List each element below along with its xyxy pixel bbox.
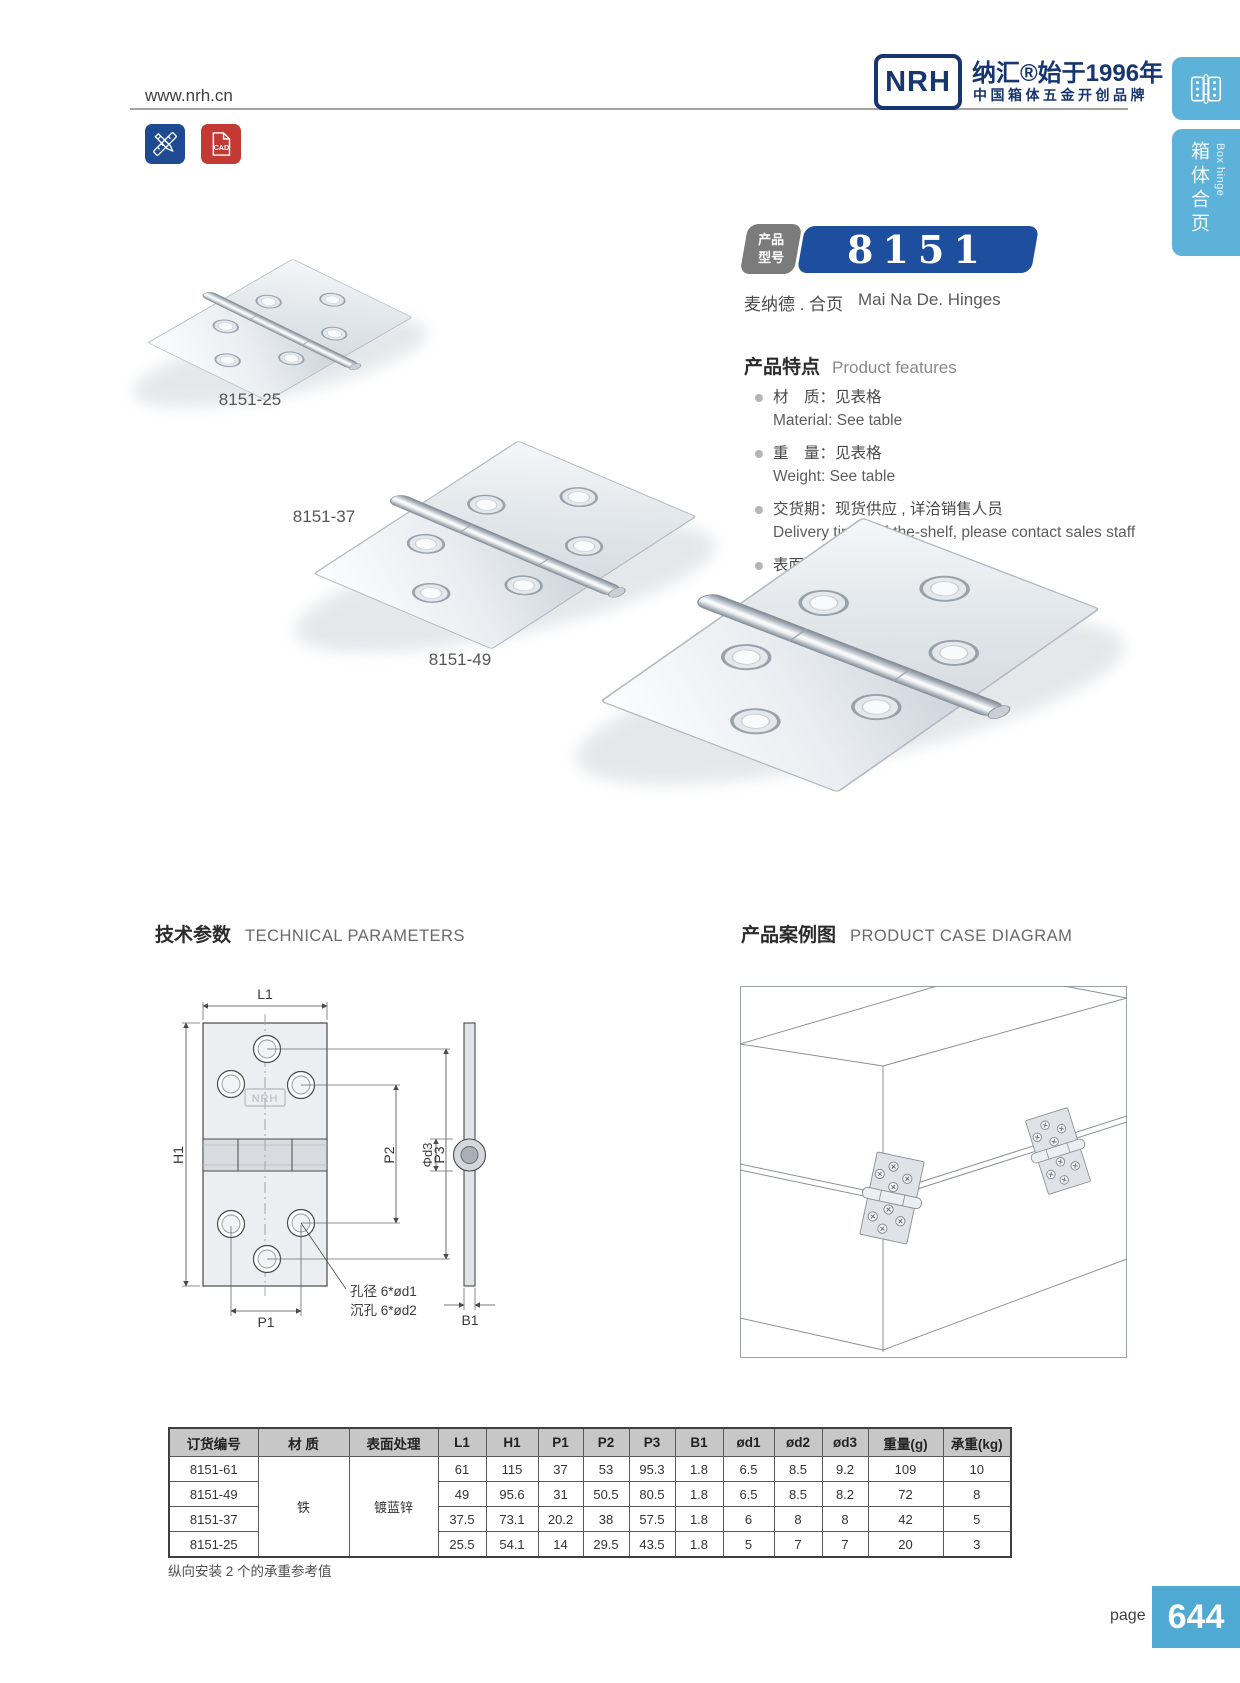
cell-p2: 50.5	[583, 1482, 629, 1507]
cad-download-button[interactable]: CAD	[201, 124, 241, 164]
cell-load: 8	[943, 1482, 1011, 1507]
hinge-icon	[1188, 71, 1224, 107]
cell-d1: 5	[723, 1532, 774, 1558]
spec-table-body: 8151-61铁镀蓝锌61115375395.31.86.58.59.21091…	[169, 1457, 1011, 1558]
spec-table-wrap: 订货编号材 质表面处理L1H1P1P2P3B1ød1ød2ød3重量(g)承重(…	[168, 1427, 1010, 1558]
cell-d1: 6	[723, 1507, 774, 1532]
cell-d3: 8.2	[822, 1482, 868, 1507]
photo-label-8151-25: 8151-25	[188, 390, 312, 410]
cell-p1: 37	[538, 1457, 583, 1482]
spec-table: 订货编号材 质表面处理L1H1P1P2P3B1ød1ød2ød3重量(g)承重(…	[168, 1427, 1012, 1558]
column-header: ød3	[822, 1428, 868, 1457]
cell-load: 3	[943, 1532, 1011, 1558]
cell-model: 8151-61	[169, 1457, 258, 1482]
cell-l1: 49	[438, 1482, 486, 1507]
cell-material: 铁	[258, 1457, 349, 1558]
cell-model: 8151-37	[169, 1507, 258, 1532]
cell-weight: 72	[868, 1482, 943, 1507]
cell-b1: 1.8	[675, 1482, 723, 1507]
cell-d2: 8	[774, 1507, 822, 1532]
side-view	[430, 1023, 495, 1310]
header-divider	[130, 108, 1128, 110]
column-header: 承重(kg)	[943, 1428, 1011, 1457]
ruler-pencil-icon	[148, 127, 182, 161]
drawing-tools-button[interactable]	[145, 124, 185, 164]
cell-b1: 1.8	[675, 1457, 723, 1482]
cell-p3: 43.5	[629, 1532, 675, 1558]
column-header: B1	[675, 1428, 723, 1457]
svg-text:Φd3: Φd3	[420, 1143, 435, 1168]
brand-slogan-line2: 中国箱体五金开创品牌	[973, 85, 1148, 105]
nrh-logo-text: NRH	[885, 66, 951, 99]
column-header: P1	[538, 1428, 583, 1457]
technical-drawing: NRH	[150, 958, 620, 1360]
cell-p2: 53	[583, 1457, 629, 1482]
page-number: 644	[1168, 1598, 1225, 1637]
column-header: P3	[629, 1428, 675, 1457]
column-header: H1	[486, 1428, 538, 1457]
catalog-page: www.nrh.cn NRH 纳汇®始于1996年 中国箱体五金开创品牌 CAD	[0, 0, 1240, 1683]
category-label-en: Box hinge	[1214, 143, 1226, 196]
cell-d1: 6.5	[723, 1457, 774, 1482]
cell-weight: 42	[868, 1507, 943, 1532]
column-header: 材 质	[258, 1428, 349, 1457]
svg-text:孔径 6*ød1: 孔径 6*ød1	[350, 1284, 417, 1299]
case-diagram	[740, 986, 1127, 1358]
cell-surface: 镀蓝锌	[349, 1457, 438, 1558]
table-footnote: 纵向安装 2 个的承重参考值	[168, 1560, 332, 1580]
svg-text:CAD: CAD	[214, 143, 230, 152]
column-header: 订货编号	[169, 1428, 258, 1457]
nrh-logo: NRH	[874, 54, 962, 110]
cell-d2: 7	[774, 1532, 822, 1558]
cell-weight: 109	[868, 1457, 943, 1482]
cell-h1: 73.1	[486, 1507, 538, 1532]
cell-p1: 14	[538, 1532, 583, 1558]
front-view: NRH	[203, 1014, 327, 1296]
column-header: L1	[438, 1428, 486, 1457]
case-diagram-heading: 产品案例图PRODUCT CASE DIAGRAM	[741, 920, 1072, 947]
cell-p2: 29.5	[583, 1532, 629, 1558]
page-number-badge: 644	[1152, 1586, 1240, 1648]
cell-d3: 8	[822, 1507, 868, 1532]
cell-weight: 20	[868, 1532, 943, 1558]
cell-p2: 38	[583, 1507, 629, 1532]
product-photos	[100, 200, 1200, 900]
sidebar-tab-hinge[interactable]	[1172, 57, 1240, 120]
cell-l1: 61	[438, 1457, 486, 1482]
cell-p3: 57.5	[629, 1507, 675, 1532]
column-header: ød1	[723, 1428, 774, 1457]
cell-b1: 1.8	[675, 1507, 723, 1532]
cell-l1: 25.5	[438, 1532, 486, 1558]
cell-d3: 9.2	[822, 1457, 868, 1482]
cell-p1: 31	[538, 1482, 583, 1507]
svg-text:B1: B1	[461, 1312, 478, 1328]
technical-parameters-heading: 技术参数TECHNICAL PARAMETERS	[155, 920, 465, 947]
cell-d2: 8.5	[774, 1457, 822, 1482]
cell-l1: 37.5	[438, 1507, 486, 1532]
cell-h1: 95.6	[486, 1482, 538, 1507]
site-url[interactable]: www.nrh.cn	[145, 86, 233, 106]
cell-d2: 8.5	[774, 1482, 822, 1507]
photo-label-8151-37: 8151-37	[262, 507, 386, 527]
svg-text:沉孔 6*ød2: 沉孔 6*ød2	[350, 1303, 417, 1318]
spec-table-head: 订货编号材 质表面处理L1H1P1P2P3B1ød1ød2ød3重量(g)承重(…	[169, 1428, 1011, 1457]
column-header: 重量(g)	[868, 1428, 943, 1457]
cell-p3: 80.5	[629, 1482, 675, 1507]
cell-d1: 6.5	[723, 1482, 774, 1507]
drawing-nrh-stamp: NRH	[252, 1093, 279, 1105]
cell-b1: 1.8	[675, 1532, 723, 1558]
brand-slogan-line1: 纳汇®始于1996年	[972, 53, 1163, 88]
cell-h1: 54.1	[486, 1532, 538, 1558]
cell-load: 5	[943, 1507, 1011, 1532]
cell-p3: 95.3	[629, 1457, 675, 1482]
table-row: 8151-61铁镀蓝锌61115375395.31.86.58.59.21091…	[169, 1457, 1011, 1482]
column-header: 表面处理	[349, 1428, 438, 1457]
svg-text:P2: P2	[381, 1146, 397, 1163]
column-header: ød2	[774, 1428, 822, 1457]
cell-p1: 20.2	[538, 1507, 583, 1532]
cad-file-icon: CAD	[204, 127, 238, 161]
cell-model: 8151-25	[169, 1532, 258, 1558]
svg-text:P1: P1	[257, 1314, 274, 1330]
column-header: P2	[583, 1428, 629, 1457]
photo-label-8151-49: 8151-49	[398, 650, 522, 670]
cell-h1: 115	[486, 1457, 538, 1482]
cell-d3: 7	[822, 1532, 868, 1558]
page-label: page	[1110, 1607, 1146, 1625]
cell-model: 8151-49	[169, 1482, 258, 1507]
svg-text:H1: H1	[170, 1146, 186, 1164]
svg-text:L1: L1	[257, 986, 273, 1002]
cell-load: 10	[943, 1457, 1011, 1482]
